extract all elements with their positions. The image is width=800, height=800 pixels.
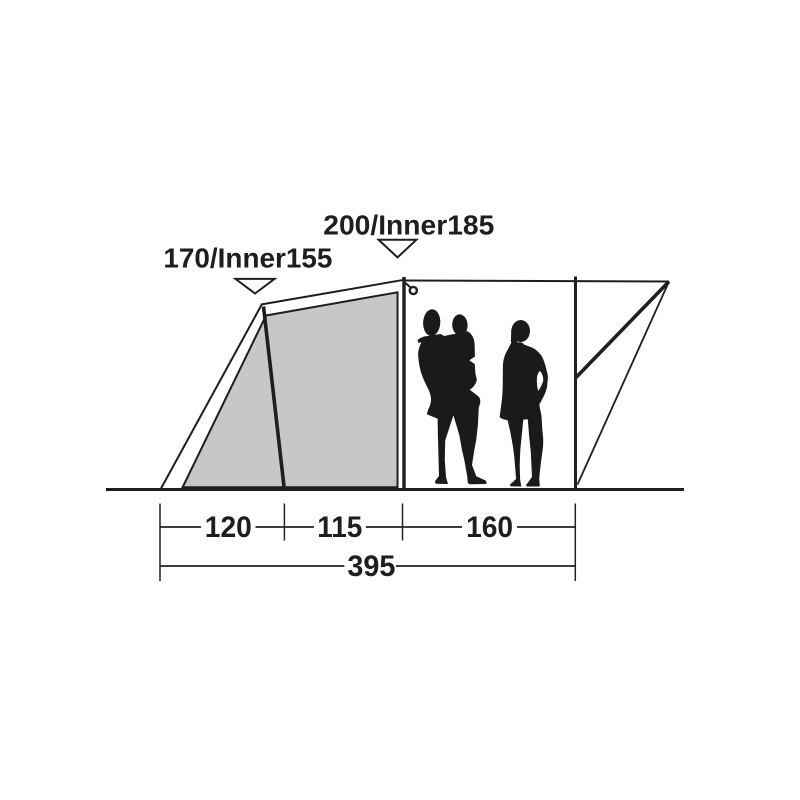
svg-text:200/Inner185: 200/Inner185 [323, 210, 494, 241]
svg-text:395: 395 [347, 550, 395, 583]
svg-text:170/Inner155: 170/Inner155 [163, 243, 332, 274]
svg-text:120: 120 [205, 511, 252, 544]
svg-text:115: 115 [317, 511, 362, 544]
svg-text:160: 160 [466, 511, 513, 544]
